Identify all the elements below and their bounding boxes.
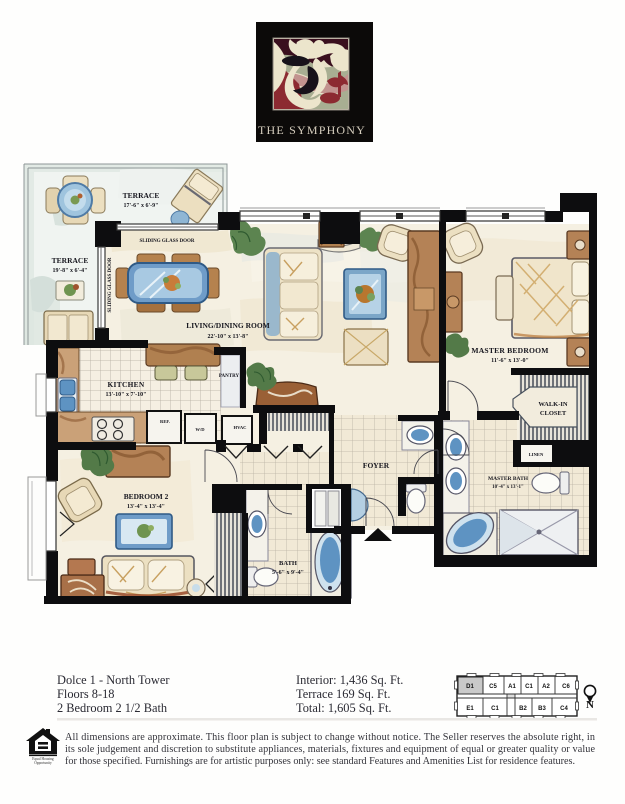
svg-text:Terrace 169 Sq. Ft.: Terrace 169 Sq. Ft. xyxy=(296,687,390,701)
svg-text:E1: E1 xyxy=(466,706,474,712)
svg-text:10'-4" x 13'-1": 10'-4" x 13'-1" xyxy=(492,485,524,490)
svg-text:TERRACE: TERRACE xyxy=(123,191,160,200)
svg-text:Floors 8-18: Floors 8-18 xyxy=(57,687,114,701)
svg-text:Opportunity: Opportunity xyxy=(34,761,52,765)
svg-text:LIVING/DINING ROOM: LIVING/DINING ROOM xyxy=(186,321,270,330)
svg-text:KITCHEN: KITCHEN xyxy=(107,380,144,389)
svg-text:CLOSET: CLOSET xyxy=(540,410,567,417)
svg-text:PANTRY: PANTRY xyxy=(219,374,240,379)
svg-text:13'-10" x 7'-10": 13'-10" x 7'-10" xyxy=(106,392,147,398)
svg-text:THE SYMPHONY: THE SYMPHONY xyxy=(258,123,366,137)
svg-text:A2: A2 xyxy=(542,684,550,690)
svg-text:C1: C1 xyxy=(491,706,499,712)
svg-text:WALK-IN: WALK-IN xyxy=(538,401,568,408)
svg-text:BATH: BATH xyxy=(279,560,297,567)
svg-text:B3: B3 xyxy=(538,706,546,712)
svg-text:Interior: 1,436 Sq. Ft.: Interior: 1,436 Sq. Ft. xyxy=(296,673,403,687)
svg-text:C4: C4 xyxy=(560,706,568,712)
svg-text:Dolce 1 - North Tower: Dolce 1 - North Tower xyxy=(57,673,170,687)
svg-text:All dimensions are approximate: All dimensions are approximate. This flo… xyxy=(65,732,595,743)
svg-text:11'-6" x 13'-0": 11'-6" x 13'-0" xyxy=(491,358,529,364)
svg-text:22'-10" x 13'-8": 22'-10" x 13'-8" xyxy=(208,334,249,340)
svg-text:Total: 1,605 Sq. Ft.: Total: 1,605 Sq. Ft. xyxy=(296,701,392,715)
svg-text:TERRACE: TERRACE xyxy=(52,256,89,265)
svg-text:W/D: W/D xyxy=(195,427,205,432)
svg-text:MASTER BEDROOM: MASTER BEDROOM xyxy=(471,346,548,355)
svg-text:17'-6" x 6'-9": 17'-6" x 6'-9" xyxy=(124,203,159,209)
svg-text:HVAC: HVAC xyxy=(234,425,247,430)
svg-text:A1: A1 xyxy=(508,684,516,690)
svg-text:FOYER: FOYER xyxy=(363,461,390,470)
svg-text:N: N xyxy=(586,699,594,711)
svg-text:13'-4" x 13'-4": 13'-4" x 13'-4" xyxy=(127,504,165,510)
svg-text:5'-6" x 9'-4": 5'-6" x 9'-4" xyxy=(272,570,304,576)
svg-text:for those specified. Furnishi: for those specified. Furnishings are for… xyxy=(65,756,575,767)
svg-text:SLIDING GLASS DOOR: SLIDING GLASS DOOR xyxy=(108,257,113,312)
svg-text:LINEN: LINEN xyxy=(529,452,544,457)
svg-text:C1: C1 xyxy=(525,684,533,690)
svg-text:D1: D1 xyxy=(466,684,474,690)
svg-text:B2: B2 xyxy=(519,706,527,712)
svg-text:BEDROOM 2: BEDROOM 2 xyxy=(124,492,169,501)
svg-text:MASTER BATH: MASTER BATH xyxy=(488,476,529,482)
svg-text:C6: C6 xyxy=(562,684,570,690)
svg-text:19'-8" x 6'-4": 19'-8" x 6'-4" xyxy=(53,268,88,274)
svg-text:its sole judgement and discret: its sole judgement and discretion to sub… xyxy=(65,744,595,755)
svg-text:REF.: REF. xyxy=(160,419,170,424)
svg-text:C5: C5 xyxy=(489,684,497,690)
svg-text:2 Bedroom 2 1/2 Bath: 2 Bedroom 2 1/2 Bath xyxy=(57,701,168,715)
svg-text:SLIDING GLASS DOOR: SLIDING GLASS DOOR xyxy=(139,239,194,244)
